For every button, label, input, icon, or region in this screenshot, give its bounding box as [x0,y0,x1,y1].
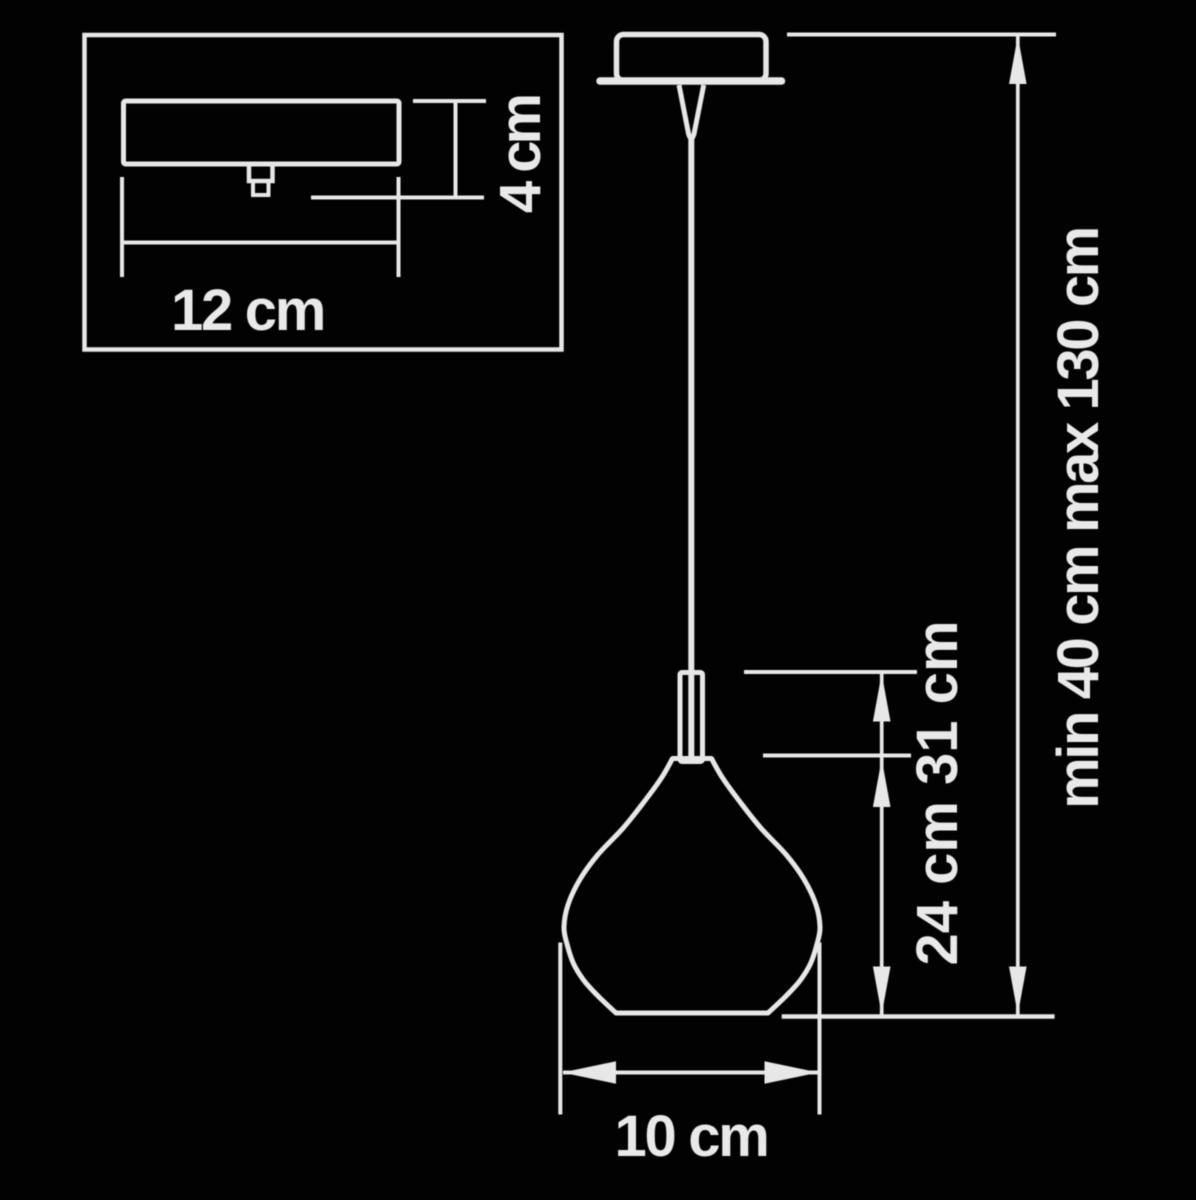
svg-text:24 cm 31 cm: 24 cm 31 cm [905,620,970,965]
svg-text:min 40 cm max 130 cm: min 40 cm max 130 cm [1046,228,1111,809]
svg-text:12 cm: 12 cm [171,278,324,343]
svg-text:4 cm: 4 cm [488,96,553,213]
svg-text:10 cm: 10 cm [615,1104,768,1169]
